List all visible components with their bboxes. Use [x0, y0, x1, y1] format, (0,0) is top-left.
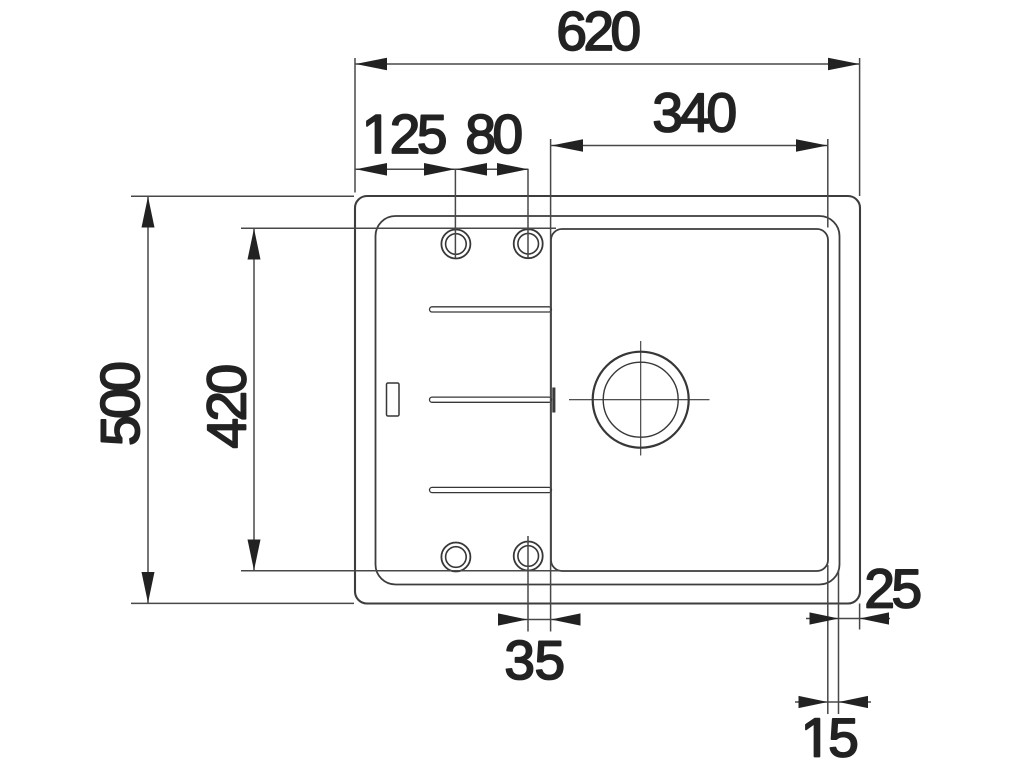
- svg-text:5: 5: [828, 707, 857, 768]
- svg-text:35: 35: [504, 629, 564, 691]
- svg-text:25: 25: [864, 558, 920, 620]
- svg-text:25: 25: [390, 103, 446, 165]
- svg-text:500: 500: [89, 363, 151, 446]
- svg-text:340: 340: [652, 82, 735, 144]
- svg-text:620: 620: [556, 0, 639, 62]
- svg-text:80: 80: [465, 103, 521, 165]
- svg-text:420: 420: [195, 365, 257, 448]
